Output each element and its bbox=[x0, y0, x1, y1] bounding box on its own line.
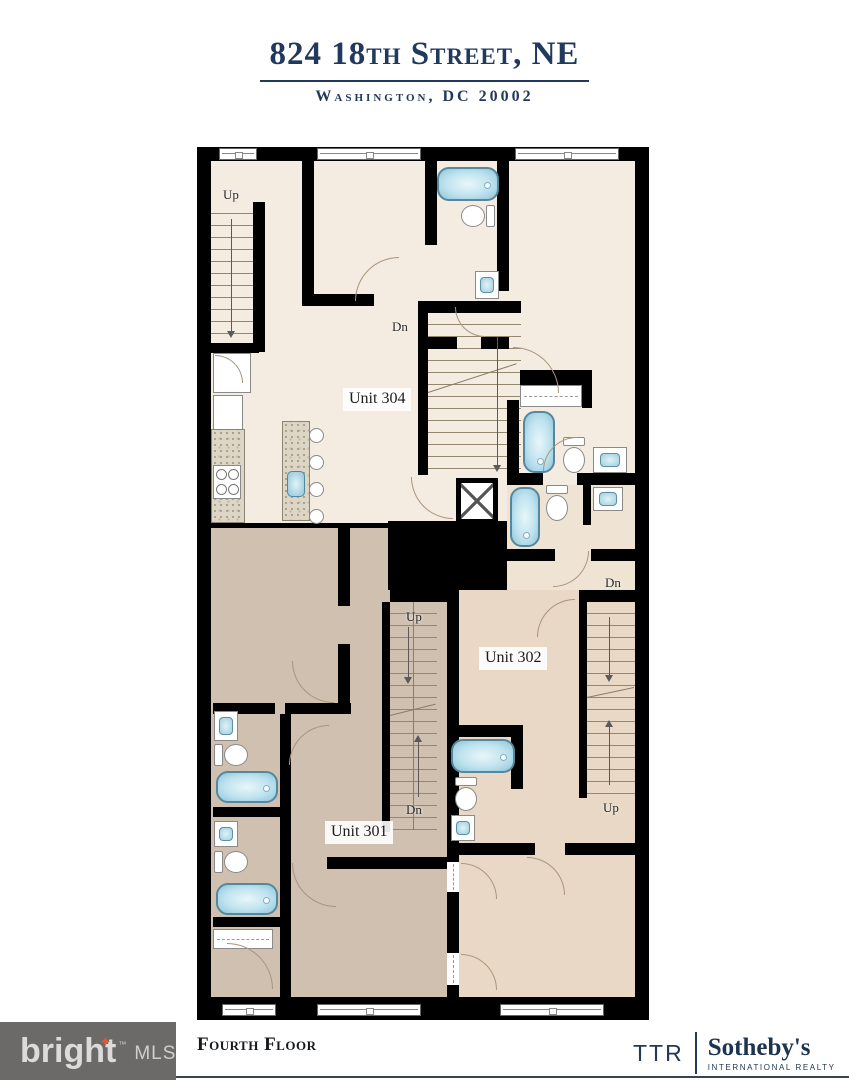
stairs-dn-label: Dn bbox=[593, 575, 633, 591]
unit-302-label: Unit 302 bbox=[479, 647, 547, 670]
page-subtitle: Washington, DC 20002 bbox=[0, 88, 849, 106]
wall bbox=[338, 644, 350, 704]
refrigerator bbox=[213, 395, 243, 431]
sink bbox=[451, 815, 475, 841]
bar-stool bbox=[309, 509, 324, 524]
stair-arrow-down-icon bbox=[609, 617, 610, 675]
stair-divider bbox=[413, 602, 414, 830]
staircase-upper-left bbox=[211, 202, 253, 352]
door-opening bbox=[447, 953, 459, 985]
sink bbox=[593, 487, 623, 511]
elevator bbox=[456, 478, 498, 524]
window bbox=[219, 148, 257, 160]
toilet bbox=[214, 744, 248, 766]
bathtub bbox=[216, 883, 278, 915]
burner-icon bbox=[228, 469, 239, 480]
unit-304-label: Unit 304 bbox=[343, 388, 411, 411]
trademark-symbol: ™ bbox=[118, 1040, 126, 1049]
bar-stool bbox=[309, 482, 324, 497]
bar-stool bbox=[309, 455, 324, 470]
stove bbox=[213, 465, 241, 499]
stairs-dn-label: Dn bbox=[383, 319, 417, 335]
wall bbox=[338, 528, 350, 606]
staircase-unit-302 bbox=[587, 602, 635, 798]
wall bbox=[285, 703, 351, 714]
stairs-up-label: Up bbox=[394, 609, 434, 625]
bathtub bbox=[451, 739, 515, 773]
wall bbox=[565, 843, 635, 855]
window bbox=[317, 148, 421, 160]
floor-label: Fourth Floor bbox=[197, 1034, 316, 1056]
wall bbox=[253, 202, 265, 352]
footer-divider-line bbox=[176, 1076, 849, 1078]
wall bbox=[213, 917, 280, 927]
wall bbox=[507, 549, 555, 561]
bright-mls-logo: bright ✦ ™ MLS bbox=[0, 1022, 176, 1080]
wall bbox=[425, 161, 437, 245]
toilet bbox=[546, 485, 568, 521]
island-sink bbox=[287, 471, 305, 497]
wall bbox=[447, 843, 535, 855]
wall bbox=[582, 370, 592, 408]
toilet bbox=[461, 205, 495, 227]
window bbox=[317, 1004, 421, 1016]
burner-icon bbox=[216, 484, 227, 495]
star-icon: ✦ bbox=[99, 1033, 112, 1051]
sink bbox=[475, 271, 499, 299]
ttr-sothebys-logo: TTR Sotheby's INTERNATIONAL REALTY bbox=[633, 1032, 836, 1074]
bathtub bbox=[216, 771, 278, 803]
window bbox=[500, 1004, 604, 1016]
stairs-up-label: Up bbox=[591, 800, 631, 816]
sink bbox=[593, 447, 627, 473]
stairs-dn-label: Dn bbox=[394, 802, 434, 818]
page-title: 824 18th Street, NE bbox=[260, 36, 590, 82]
stair-arrow-down-icon bbox=[408, 627, 409, 677]
wall bbox=[583, 485, 591, 525]
wall bbox=[382, 602, 390, 832]
wall bbox=[213, 807, 280, 817]
wall bbox=[388, 521, 507, 590]
toilet bbox=[214, 851, 248, 873]
floor-plan: Unit 304 Unit 302 Unit 301 Up Dn Up Dn D… bbox=[197, 147, 649, 1020]
sothebys-logo-text: Sotheby's bbox=[708, 1035, 836, 1060]
stair-arrow-up-icon bbox=[609, 727, 610, 785]
stair-arrow-up-icon bbox=[418, 742, 419, 797]
sothebys-tagline: INTERNATIONAL REALTY bbox=[708, 1063, 836, 1072]
wall bbox=[425, 337, 457, 349]
logo-divider bbox=[695, 1032, 697, 1074]
burner-icon bbox=[228, 484, 239, 495]
burner-icon bbox=[216, 469, 227, 480]
wall bbox=[390, 590, 447, 602]
window bbox=[222, 1004, 276, 1016]
wall bbox=[302, 161, 314, 306]
wall bbox=[211, 343, 259, 353]
stairs-up-label: Up bbox=[209, 187, 253, 203]
wall bbox=[579, 602, 587, 798]
wall bbox=[327, 857, 447, 869]
floorplan-page: 824 18th Street, NE Washington, DC 20002 bbox=[0, 0, 849, 1080]
sink bbox=[214, 711, 238, 741]
mls-logo-text: MLS bbox=[134, 1043, 176, 1065]
bathtub bbox=[437, 167, 499, 201]
header: 824 18th Street, NE Washington, DC 20002 bbox=[0, 36, 849, 106]
bathtub bbox=[510, 487, 540, 547]
stair-arrow-down-icon bbox=[497, 337, 498, 465]
toilet bbox=[455, 777, 477, 811]
window bbox=[515, 148, 619, 160]
sink bbox=[214, 821, 238, 847]
bar-stool bbox=[309, 428, 324, 443]
wall bbox=[507, 473, 543, 485]
wall bbox=[579, 590, 635, 602]
ttr-logo-text: TTR bbox=[633, 1040, 684, 1067]
wall bbox=[481, 337, 509, 349]
unit-301-label: Unit 301 bbox=[325, 821, 393, 844]
stair-arrow-down-icon bbox=[231, 219, 232, 331]
wall bbox=[577, 473, 635, 485]
wall bbox=[418, 313, 428, 475]
wall bbox=[591, 549, 635, 561]
door-opening bbox=[447, 862, 459, 892]
wall bbox=[507, 400, 519, 473]
